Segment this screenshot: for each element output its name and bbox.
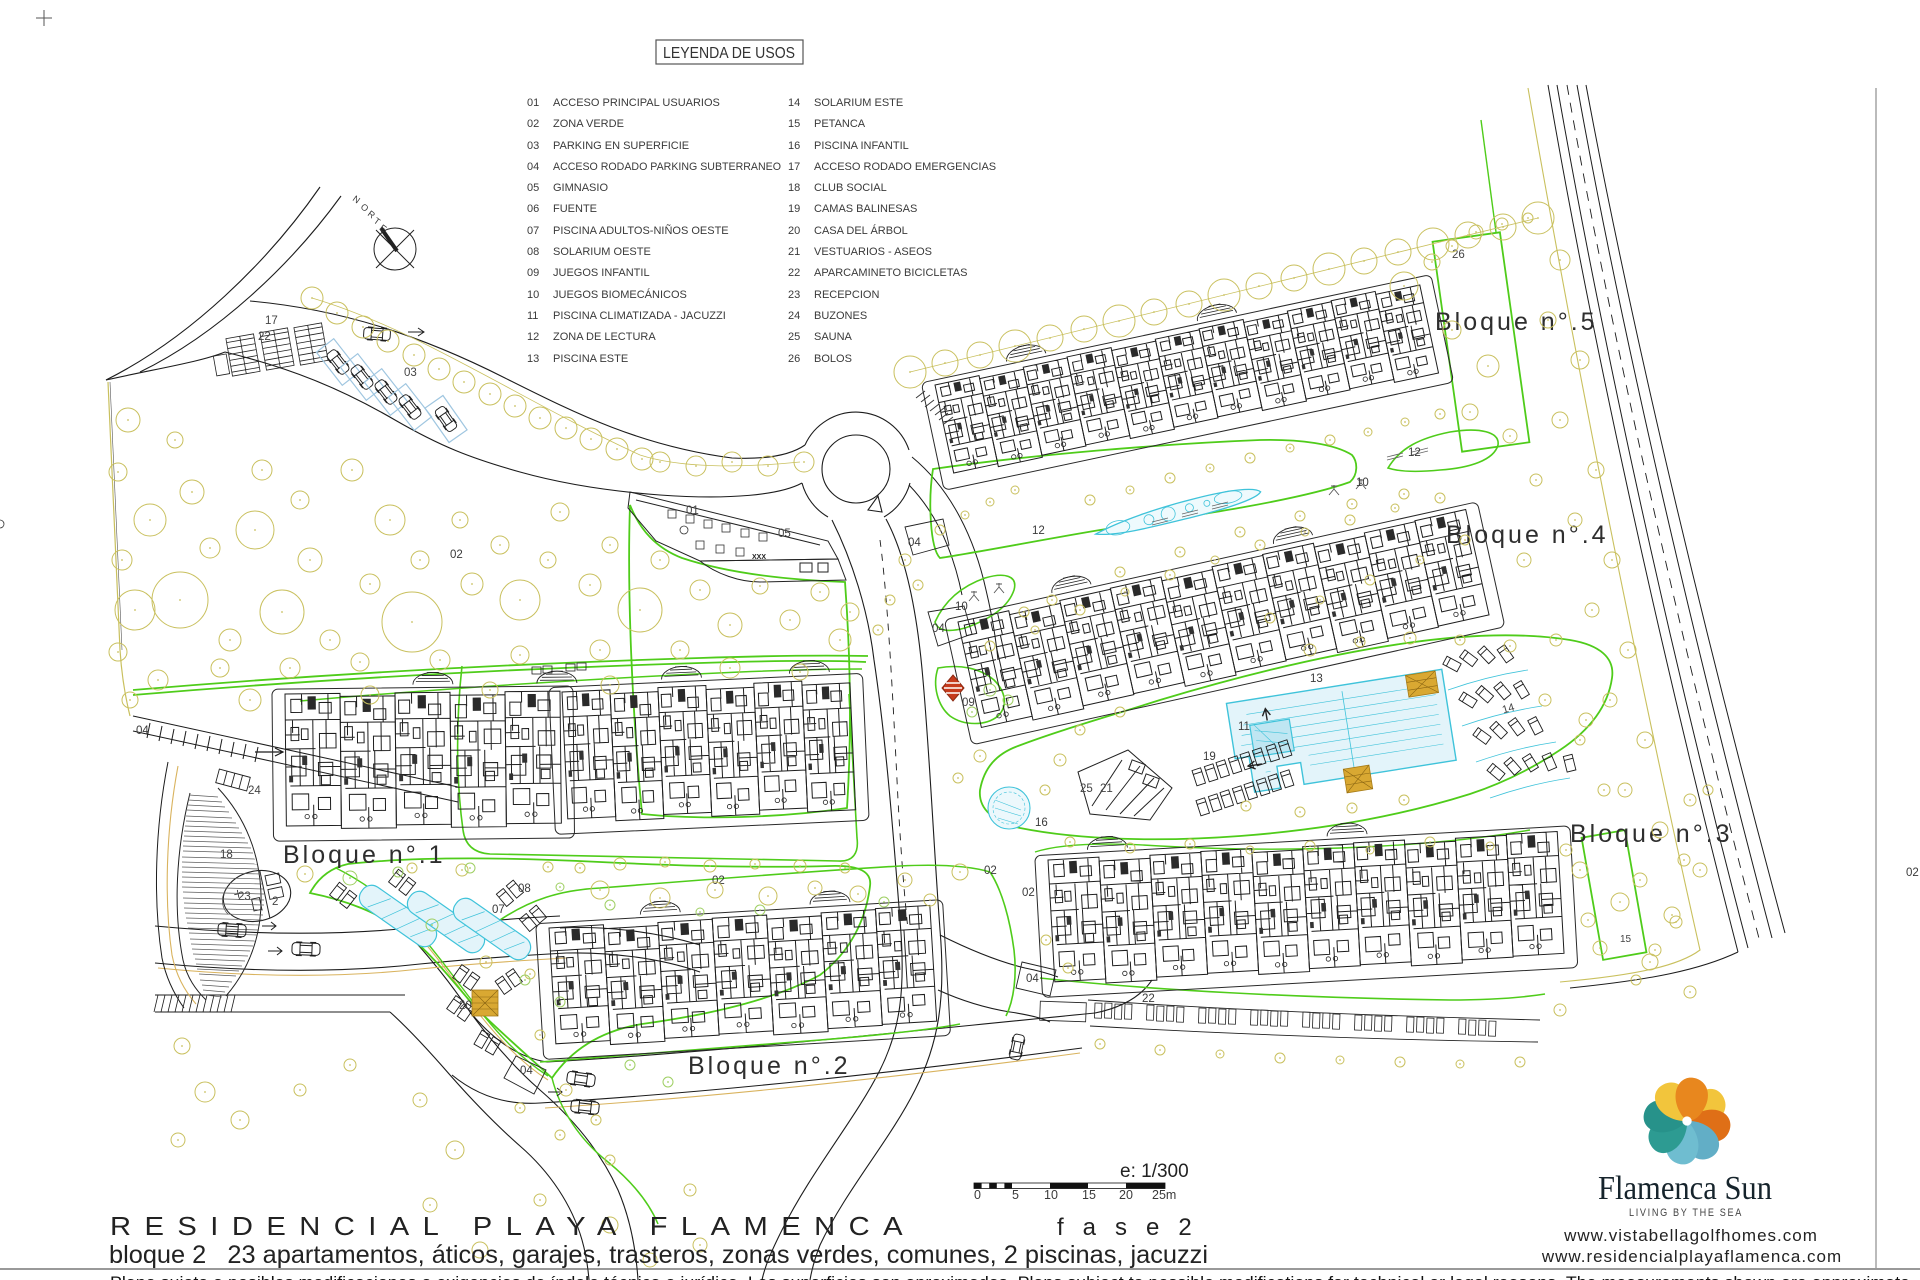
svg-text:11: 11 [527,310,538,322]
svg-text:06: 06 [527,203,539,215]
svg-text:04: 04 [1026,973,1039,985]
svg-text:02: 02 [712,875,725,887]
svg-text:12: 12 [1032,525,1045,537]
svg-text:25: 25 [1080,783,1093,795]
svg-text:Bloque n°.2: Bloque n°.2 [688,1052,851,1080]
svg-text:JUEGOS BIOMECÁNICOS: JUEGOS BIOMECÁNICOS [553,288,687,301]
svg-text:13: 13 [527,353,539,365]
svg-text:BOLOS: BOLOS [814,353,852,365]
svg-text:www.vistabellagolfhomes.com: www.vistabellagolfhomes.com [1563,1226,1818,1245]
svg-text:26: 26 [1452,249,1465,261]
svg-text:2: 2 [272,896,278,908]
svg-text:LEYENDA DE USOS: LEYENDA DE USOS [663,45,795,62]
svg-text:16: 16 [788,140,800,152]
svg-text:PISCINA ESTE: PISCINA ESTE [553,353,628,365]
svg-text:02: 02 [984,865,997,877]
svg-text:18: 18 [220,849,233,861]
svg-text:21: 21 [788,246,800,258]
svg-text:GIMNASIO: GIMNASIO [553,182,608,194]
svg-text:20: 20 [459,1000,472,1012]
svg-text:Bloque n°.3: Bloque n°.3 [1570,820,1733,848]
svg-text:CASA DEL ÁRBOL: CASA DEL ÁRBOL [814,224,908,237]
svg-text:SOLARIUM ESTE: SOLARIUM ESTE [814,97,903,109]
svg-text:04: 04 [520,1065,533,1077]
svg-text:ZONA DE LECTURA: ZONA DE LECTURA [553,331,656,343]
svg-text:03: 03 [404,367,417,379]
svg-text:PARKING EN SUPERFICIE: PARKING EN SUPERFICIE [553,140,689,152]
svg-text:Flamenca Sun: Flamenca Sun [1598,1170,1772,1207]
svg-text:20: 20 [1119,1188,1133,1202]
svg-text:Bloque n°.5: Bloque n°.5 [1435,308,1598,336]
svg-text:09: 09 [527,267,539,279]
svg-text:ACCESO RODADO PARKING SUBTERRA: ACCESO RODADO PARKING SUBTERRANEO [553,161,781,173]
svg-text:07: 07 [527,225,539,237]
svg-text:24: 24 [248,785,261,797]
svg-text:23: 23 [238,891,251,903]
svg-text:15: 15 [1082,1188,1096,1202]
svg-text:FUENTE: FUENTE [553,203,597,215]
svg-text:08: 08 [527,246,539,258]
svg-text:LIVING BY THE SEA: LIVING BY THE SEA [1629,1207,1743,1219]
svg-text:03: 03 [527,140,539,152]
svg-text:16: 16 [1035,817,1048,829]
svg-text:02: 02 [450,549,463,561]
svg-text:JUEGOS INFANTIL: JUEGOS INFANTIL [553,267,650,279]
svg-text:RESIDENCIAL PLAYA FLAMENCA: RESIDENCIAL PLAYA FLAMENCA [110,1211,916,1241]
svg-text:Plano sujeto a posibles modifi: Plano sujeto a posibles modificaciones o… [110,1273,1910,1280]
svg-text:0: 0 [974,1188,981,1202]
svg-text:ZONA VERDE: ZONA VERDE [553,118,624,130]
svg-text:10: 10 [527,289,539,301]
svg-text:CAMAS BALINESAS: CAMAS BALINESAS [814,203,917,215]
svg-text:04: 04 [136,725,149,737]
svg-text:10: 10 [955,601,968,613]
svg-text:fase2: fase2 [1057,1214,1211,1241]
svg-text:PISCINA ADULTOS-NIÑOS OESTE: PISCINA ADULTOS-NIÑOS OESTE [553,224,729,237]
svg-text:PISCINA INFANTIL: PISCINA INFANTIL [814,140,909,152]
svg-text:04: 04 [932,623,945,635]
svg-text:17: 17 [788,161,800,173]
svg-text:04: 04 [908,537,921,549]
svg-text:BUZONES: BUZONES [814,310,867,322]
svg-text:5: 5 [1012,1188,1019,1202]
svg-text:12: 12 [527,331,539,343]
svg-text:25m: 25m [1152,1188,1176,1202]
svg-text:22: 22 [788,267,800,279]
svg-text:02: 02 [527,118,539,130]
svg-text:RECEPCION: RECEPCION [814,289,879,301]
svg-text:05: 05 [778,528,791,540]
svg-text:12: 12 [1408,447,1421,459]
svg-text:23: 23 [788,289,800,301]
svg-text:18: 18 [788,182,800,194]
svg-text:10: 10 [1044,1188,1058,1202]
svg-text:05: 05 [527,182,539,194]
svg-text:ACCESO RODADO EMERGENCIAS: ACCESO RODADO EMERGENCIAS [814,161,996,173]
svg-text:14: 14 [788,97,800,109]
svg-text:e: 1/300: e: 1/300 [1120,1161,1189,1182]
svg-text:01: 01 [686,505,699,517]
svg-text:19: 19 [1203,751,1216,763]
svg-text:26: 26 [788,353,800,365]
svg-text:10: 10 [1356,477,1369,489]
svg-text:24: 24 [788,310,800,322]
svg-text:VESTUARIOS - ASEOS: VESTUARIOS - ASEOS [814,246,932,258]
svg-text:XXX: XXX [752,554,766,561]
svg-text:17: 17 [265,315,278,327]
svg-text:PETANCA: PETANCA [814,118,866,130]
svg-text:21: 21 [1100,783,1113,795]
svg-text:Bloque n°.1: Bloque n°.1 [283,841,446,869]
svg-text:08: 08 [518,883,531,895]
svg-text:www.residencialplayaflamenca.c: www.residencialplayaflamenca.com [1541,1247,1842,1266]
svg-text:20: 20 [788,225,800,237]
svg-text:01: 01 [527,97,539,109]
svg-text:04: 04 [527,161,539,173]
svg-text:bloque 2 23 apartamentos, át: bloque 2 23 apartamentos, áticos, garaje… [109,1241,1208,1269]
svg-text:11: 11 [1238,721,1250,733]
svg-text:Bloque n°.4: Bloque n°.4 [1446,521,1609,549]
svg-text:SAUNA: SAUNA [814,331,853,343]
svg-text:APARCAMINETO BICICLETAS: APARCAMINETO BICICLETAS [814,267,967,279]
svg-text:25: 25 [788,331,800,343]
svg-text:13: 13 [1310,673,1323,685]
svg-text:19: 19 [788,203,800,215]
svg-text:PISCINA CLIMATIZADA - JACUZZI: PISCINA CLIMATIZADA - JACUZZI [553,310,726,322]
svg-text:ACCESO PRINCIPAL USUARIOS: ACCESO PRINCIPAL USUARIOS [553,97,720,109]
svg-text:07: 07 [492,904,505,916]
svg-text:02: 02 [1906,867,1919,879]
svg-text:22: 22 [258,331,271,343]
svg-text:15: 15 [788,118,800,130]
svg-text:SOLARIUM OESTE: SOLARIUM OESTE [553,246,651,258]
svg-text:15: 15 [1620,934,1632,945]
svg-text:CLUB SOCIAL: CLUB SOCIAL [814,182,887,194]
svg-text:02: 02 [1022,887,1035,899]
svg-text:22: 22 [1142,993,1155,1005]
